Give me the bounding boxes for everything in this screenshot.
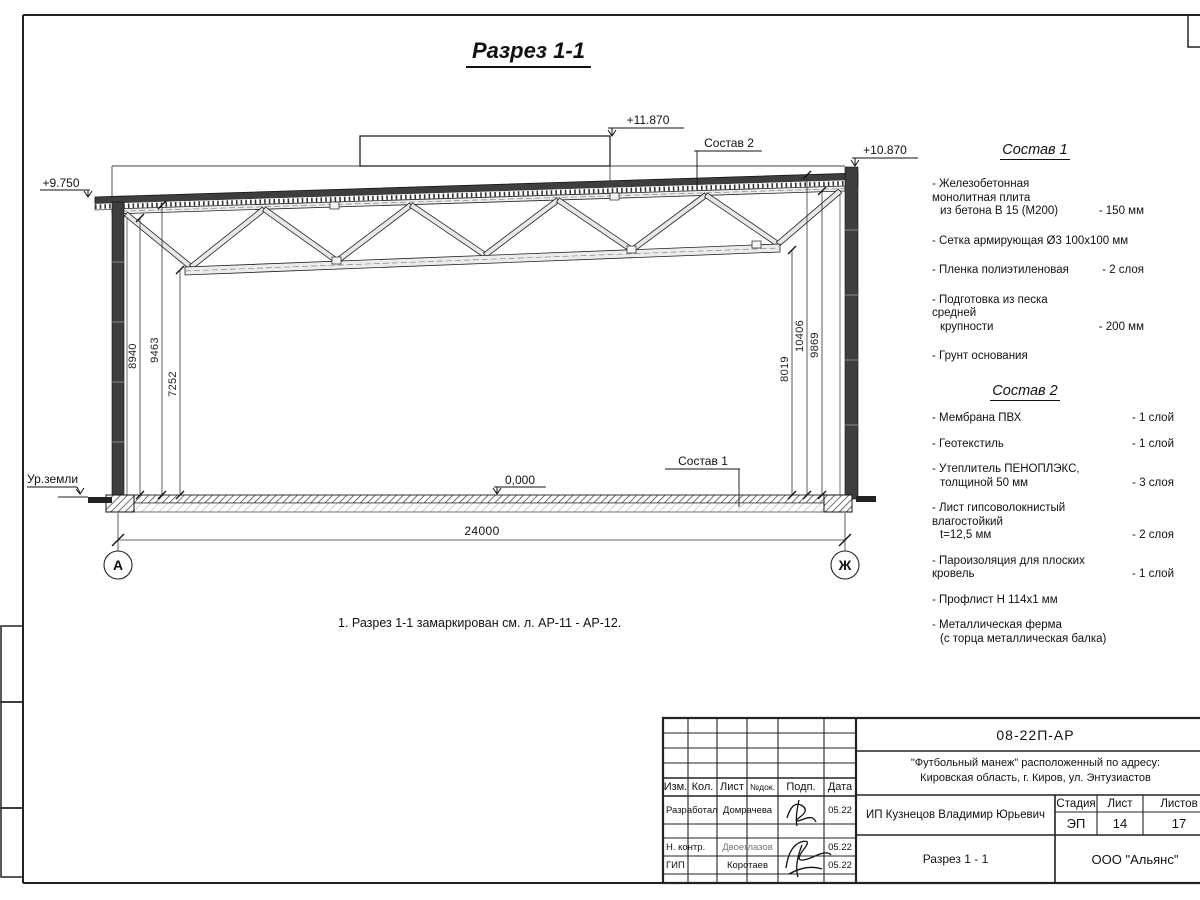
composition-item: - Сетка армирующая Ø3 100х100 мм — [932, 235, 1144, 249]
composition2-list: - Мембрана ПВХ- 1 слой- Геотекстиль- 1 с… — [932, 412, 1174, 658]
stage-label: Стадия — [1055, 795, 1097, 812]
signature-razrabotal — [787, 800, 816, 826]
dim-right-10406: 10406 — [794, 306, 806, 366]
composition-item: - Пароизоляция для плоских кровель- 1 сл… — [932, 555, 1174, 582]
organization-name: ООО "Альянс" — [1055, 835, 1200, 883]
dim-right-9869: 9869 — [809, 315, 821, 375]
row-role-razrabotal: Разработал — [663, 796, 720, 824]
row-name-korotaev: Коротаев — [717, 856, 778, 874]
composition-item: - Металлическая ферма(с торца металличес… — [932, 619, 1174, 646]
composition1-title: Состав 1 — [930, 142, 1140, 160]
composition-item: - Профлист Н 114х1 мм — [932, 594, 1174, 608]
margin-box-2 — [1, 702, 23, 808]
sheets-value: 17 — [1143, 812, 1200, 835]
leader-label-comp2: Состав 2 — [694, 136, 764, 150]
dim-right-8019: 8019 — [779, 339, 791, 399]
ground-bar-left — [88, 497, 112, 503]
right-wall — [840, 167, 858, 499]
sheet-value: 14 — [1097, 812, 1143, 835]
row-date-nkontr: 05.22 — [824, 838, 856, 856]
col-ndok: №док. — [747, 778, 778, 796]
col-data: Дата — [824, 778, 856, 796]
row-date-razrabotal: 05.22 — [824, 796, 856, 824]
axis-label-zh: Ж — [831, 557, 859, 573]
row-role-nkontr: Н. контр. — [663, 838, 720, 856]
elevation-left: +9.750 — [34, 176, 88, 190]
composition-item-amount: - 1 слой — [1132, 438, 1174, 452]
sheets-label: Листов — [1143, 795, 1200, 812]
dim-left-8940: 8940 — [127, 326, 139, 386]
composition-item: - Подготовка из песка среднейкрупности- … — [932, 294, 1144, 335]
row-name-domracheva: Домрачева — [717, 796, 778, 824]
dim-ticks — [136, 171, 826, 499]
composition-item: - Железобетонная монолитная плитаиз бето… — [932, 178, 1144, 219]
elevation-top: +11.870 — [610, 113, 686, 127]
elevation-right: +10.870 — [850, 143, 920, 157]
ground-level-label: Ур.земли — [27, 472, 78, 486]
row-role-gip: ГИП — [663, 856, 720, 874]
row-name-dvoeglazov: Двоеглазов — [717, 838, 778, 856]
col-list: Лист — [717, 778, 747, 796]
col-izm: Изм. — [663, 778, 688, 796]
stage-value: ЭП — [1055, 812, 1097, 835]
margin-box-1 — [1, 626, 23, 702]
row-date-gip: 05.22 — [824, 856, 856, 874]
dim-left-9463: 9463 — [149, 320, 161, 380]
frame-corner-box — [1188, 15, 1200, 47]
composition-item-amount: - 150 мм — [1099, 205, 1144, 219]
sheet-label: Лист — [1097, 795, 1143, 812]
composition1-list: - Железобетонная монолитная плитаиз бето… — [932, 178, 1144, 380]
composition-item-amount: - 2 слоя — [1132, 529, 1174, 543]
roof-lantern — [360, 136, 610, 166]
left-wall — [112, 202, 127, 499]
dim-span-24000: 24000 — [451, 524, 513, 538]
foundation-right — [824, 495, 852, 512]
composition-item: - Грунт основания — [932, 350, 1144, 364]
composition-item: - Мембрана ПВХ- 1 слой — [932, 412, 1174, 426]
dim-left-7252: 7252 — [167, 354, 179, 414]
composition-item: - Геотекстиль- 1 слой — [932, 438, 1174, 452]
leader-label-comp1: Состав 1 — [664, 454, 742, 468]
axis-label-a: А — [104, 557, 132, 573]
ground-bar-right — [856, 496, 876, 502]
drawing-sheet: Разрез 1-1 +9.750 +11.870 +10.870 0,000 … — [0, 0, 1200, 900]
sheet-title: Разрез 1 - 1 — [856, 835, 1055, 883]
client-name: ИП Кузнецов Владимир Юрьевич — [856, 795, 1055, 835]
elevation-floor: 0,000 — [494, 473, 546, 487]
composition-item-amount: - 2 слоя — [1102, 264, 1144, 278]
composition-item: - Лист гипсоволокнистый влагостойкийt=12… — [932, 502, 1174, 543]
composition-item: - Утеплитель ПЕНОПЛЭКС,толщиной 50 мм- 3… — [932, 463, 1174, 490]
composition-item-amount: - 200 мм — [1099, 321, 1144, 335]
composition-item-amount: - 1 слой — [1132, 568, 1174, 582]
composition2-title: Состав 2 — [930, 383, 1120, 401]
drawing-note: 1. Разрез 1-1 замаркирован см. л. АР-11 … — [338, 616, 621, 630]
project-name-line2: Кировская область, г. Киров, ул. Энтузиа… — [856, 768, 1200, 788]
composition-item-amount: - 3 слоя — [1132, 477, 1174, 491]
col-kol: Кол. — [688, 778, 717, 796]
margin-box-3 — [1, 808, 23, 877]
composition-item-amount: - 1 слой — [1132, 412, 1174, 426]
col-podp: Подп. — [778, 778, 824, 796]
doc-code: 08-22П-АР — [856, 720, 1200, 750]
composition-item: - Пленка полиэтиленовая- 2 слоя — [932, 264, 1144, 278]
page-title: Разрез 1-1 — [466, 38, 766, 68]
